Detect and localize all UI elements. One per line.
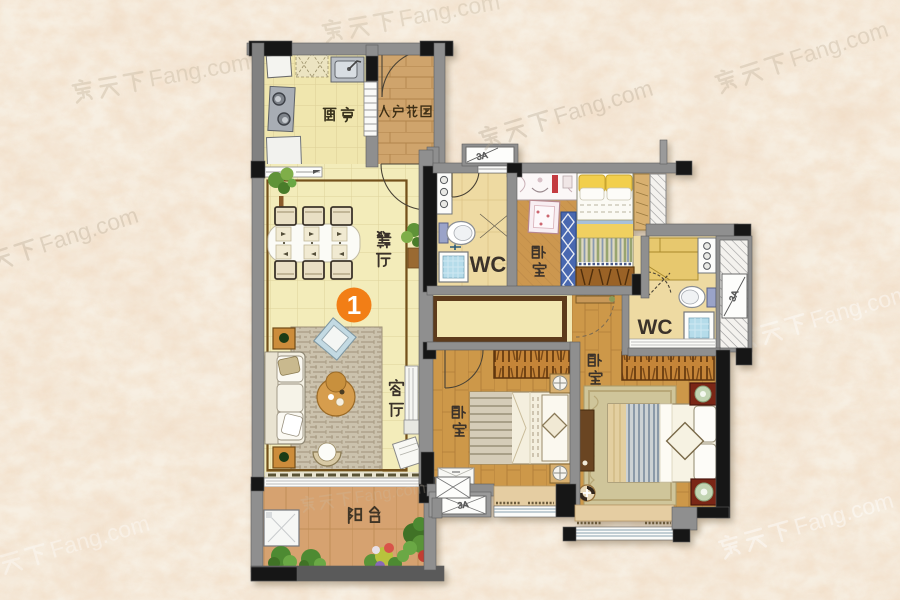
svg-text:3A: 3A	[457, 499, 469, 510]
svg-text:WC: WC	[470, 252, 507, 277]
svg-text:1: 1	[347, 290, 361, 320]
svg-text:WC: WC	[638, 316, 673, 339]
